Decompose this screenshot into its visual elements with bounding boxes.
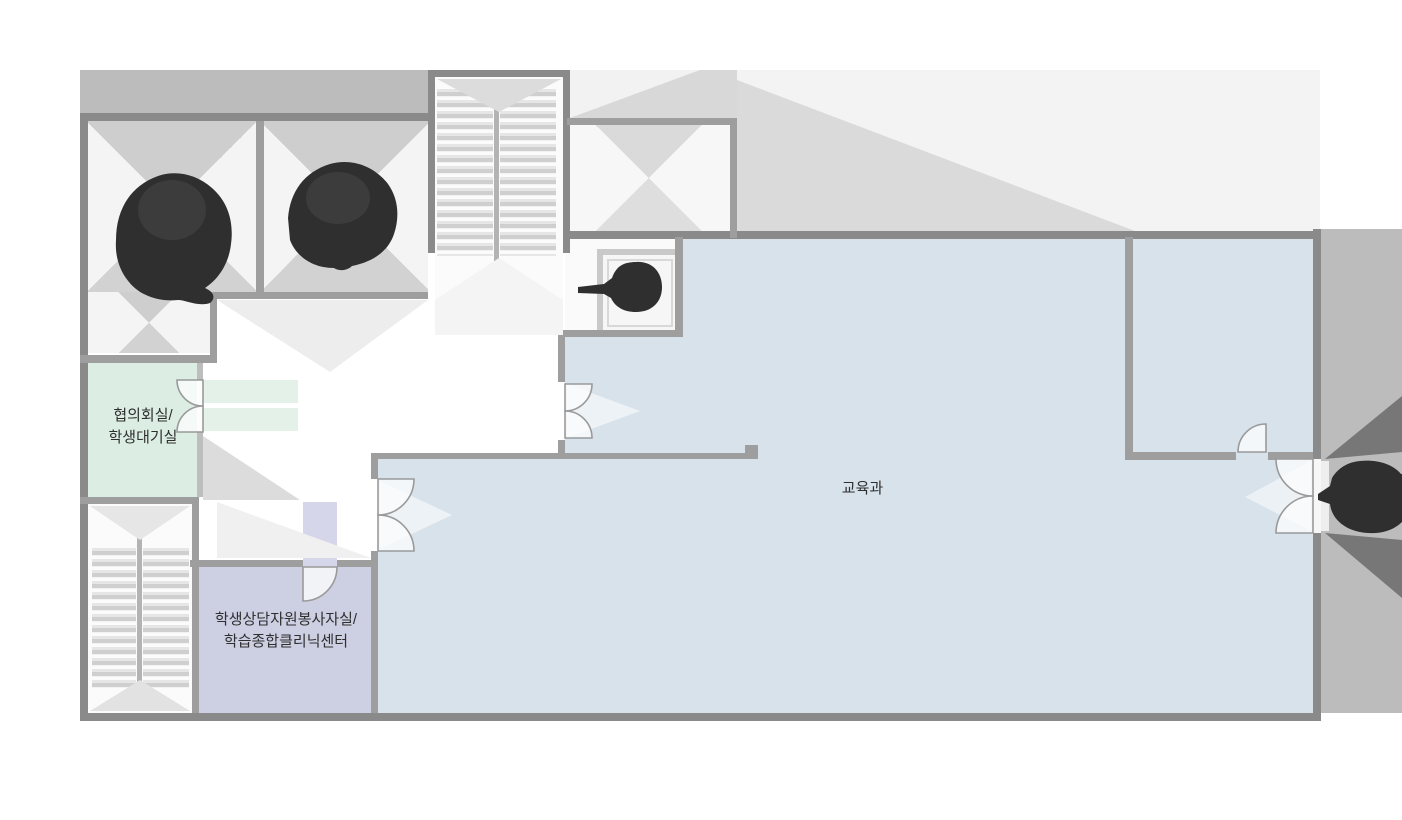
wall-corridor-education-stub <box>745 445 758 454</box>
lightwell-room-1-lower <box>88 292 210 353</box>
council-room-label: 협의회실/ 학생대기실 <box>84 405 202 449</box>
wall-subroom-left <box>1125 237 1133 460</box>
stairs-bottom-flight-right[interactable] <box>143 545 189 690</box>
room-education-main[interactable] <box>683 237 1315 713</box>
shadow-corridor-1 <box>217 300 428 372</box>
wall-outer-top-left <box>80 113 428 121</box>
planter-box-inner <box>607 259 673 327</box>
wall-stairtop-top <box>428 70 570 77</box>
wall-outer-right-upper <box>1313 229 1321 459</box>
entrance-mat-outer <box>1321 461 1329 531</box>
council-door-mat-1 <box>203 380 298 403</box>
counseling-room-label-line1: 학생상담자원봉사자실/ <box>196 609 376 631</box>
stairs-top-rail <box>494 84 499 284</box>
wall-education-west-mid <box>558 440 565 459</box>
wall-stairtop-left <box>428 70 435 253</box>
wall-planter-right <box>675 237 683 337</box>
counseling-room-label: 학생상담자원봉사자실/ 학습종합클리닉센터 <box>196 609 376 653</box>
stairs-top-flight-left[interactable] <box>437 86 493 256</box>
council-door-mat-2 <box>203 408 298 431</box>
wall-education-west-upper <box>558 337 565 382</box>
wall-counseling-top-left <box>190 560 303 567</box>
wall-stairtop-right <box>563 70 570 253</box>
lightwell-room-2 <box>263 121 428 292</box>
stairs-bottom-flight-left[interactable] <box>92 545 136 690</box>
council-room-label-line2: 학생대기실 <box>84 427 202 449</box>
shadow-corridor-2 <box>203 436 300 500</box>
wall-outer-right-lower <box>1313 533 1321 721</box>
counseling-room-label-line2: 학습종합클리닉센터 <box>196 631 376 653</box>
wall-roomC-right <box>730 118 737 238</box>
wall-subroom-bottom-left <box>1125 452 1236 460</box>
wall-under-lightwells <box>210 292 428 299</box>
wall-council-top <box>80 355 217 363</box>
exterior-band-top-mid <box>570 70 737 118</box>
room-upper-mid <box>567 125 730 231</box>
wall-under-planter <box>558 330 683 337</box>
entrance-mat-inner <box>1313 459 1321 533</box>
wall-council-bottom <box>80 497 199 504</box>
exterior-zone-right <box>1321 229 1402 713</box>
exterior-band-top-left <box>80 70 428 113</box>
shadow-corridor-3 <box>217 502 371 558</box>
exterior-zone-top-right <box>737 70 1320 237</box>
wall-corridor-left <box>210 292 217 360</box>
council-room-label-line1: 협의회실/ <box>84 405 202 427</box>
lightwell-room-1 <box>88 121 256 292</box>
wall-divider-lightwells <box>256 121 264 292</box>
wall-outer-bottom <box>80 713 1321 721</box>
wall-roomC-top <box>567 118 737 125</box>
stairs-top-flight-right[interactable] <box>500 86 556 256</box>
education-room-label: 교육과 <box>770 478 955 500</box>
counseling-door-mat <box>303 502 337 567</box>
wall-council-right-upper <box>197 363 203 380</box>
stairs-bottom-rail <box>137 520 142 700</box>
wall-subroom-bottom-right <box>1268 452 1313 460</box>
room-education-lower-left <box>378 459 683 713</box>
room-education-mid <box>565 337 683 459</box>
floor-plan: 협의회실/ 학생대기실 학생상담자원봉사자실/ 학습종합클리닉센터 교육과 <box>0 0 1402 820</box>
